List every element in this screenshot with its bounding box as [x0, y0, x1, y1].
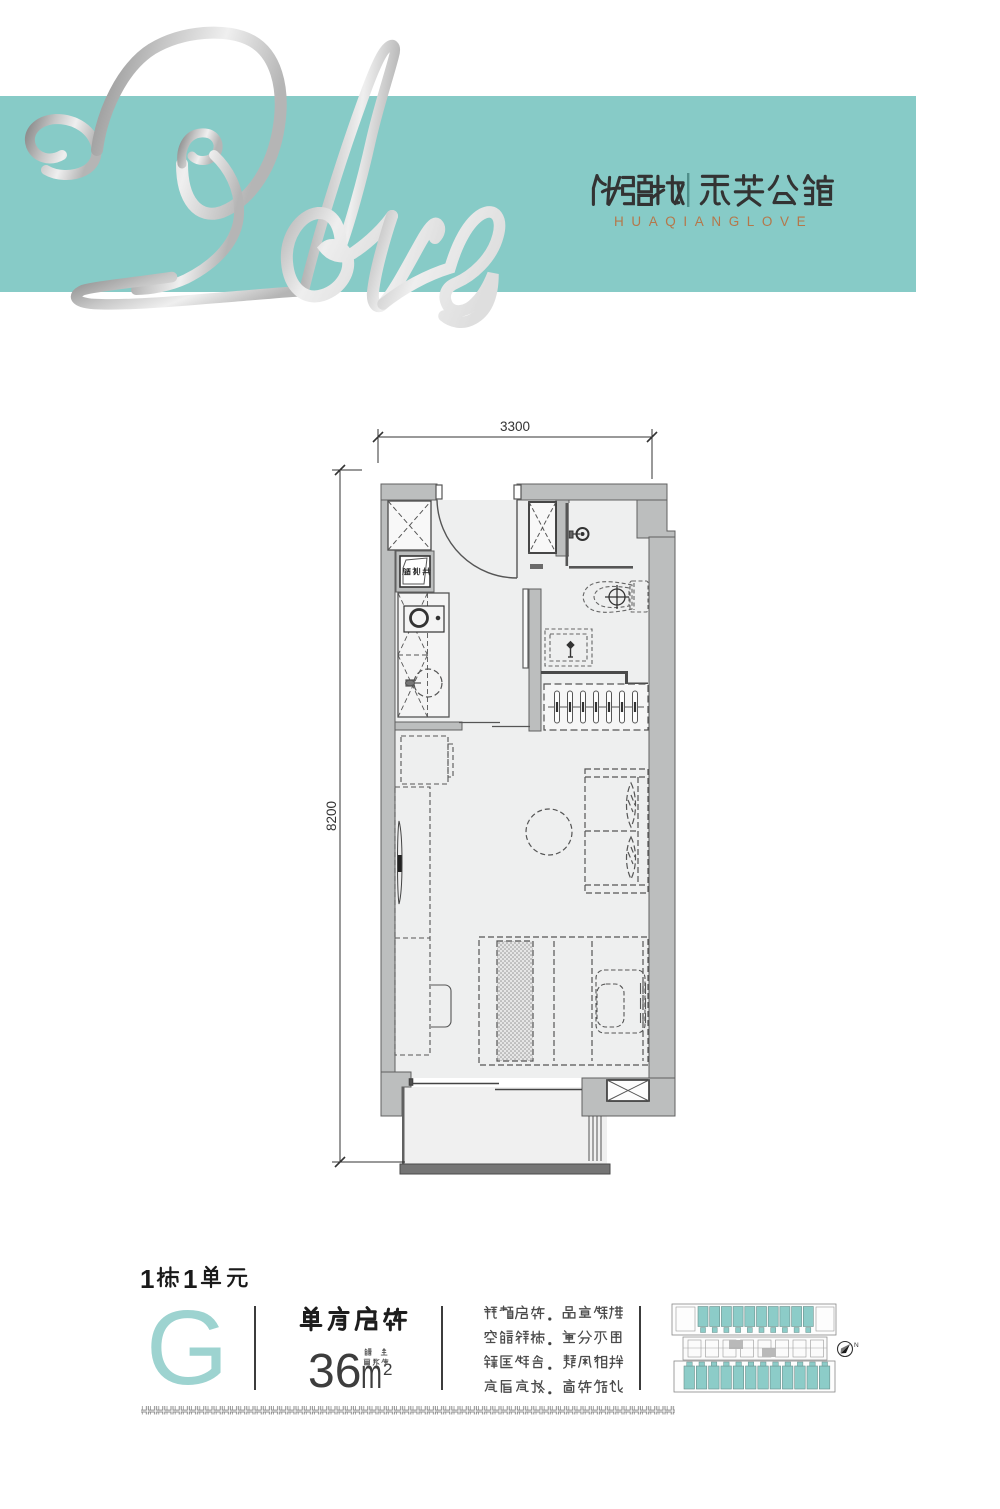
svg-text:36: 36 — [308, 1345, 361, 1398]
svg-text:HUAQIANGLOVE: HUAQIANGLOVE — [614, 214, 813, 229]
svg-text:3300: 3300 — [500, 419, 530, 434]
svg-text:N: N — [854, 1342, 859, 1349]
svg-text:8200: 8200 — [324, 801, 339, 831]
svg-text:G: G — [146, 1289, 228, 1407]
svg-text:m: m — [361, 1352, 382, 1398]
